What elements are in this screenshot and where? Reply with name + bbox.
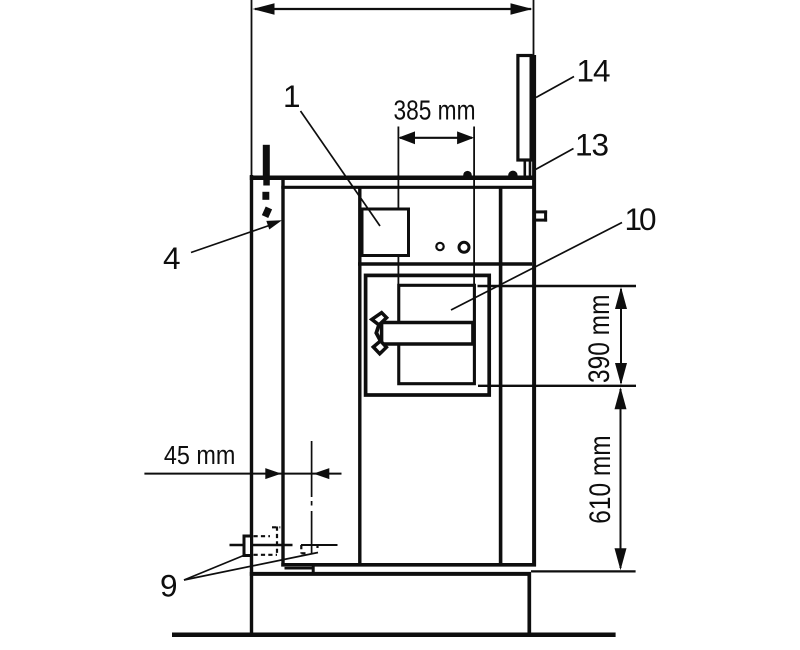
svg-text:45 mm: 45 mm	[164, 442, 236, 470]
svg-text:4: 4	[163, 240, 181, 276]
svg-text:14: 14	[577, 53, 611, 89]
svg-text:610 mm: 610 mm	[584, 435, 617, 524]
svg-text:10: 10	[625, 201, 657, 237]
svg-text:1: 1	[283, 78, 301, 114]
svg-text:390 mm: 390 mm	[583, 295, 616, 384]
svg-text:385 mm: 385 mm	[394, 95, 476, 126]
svg-text:13: 13	[575, 126, 609, 162]
svg-text:9: 9	[160, 567, 178, 603]
